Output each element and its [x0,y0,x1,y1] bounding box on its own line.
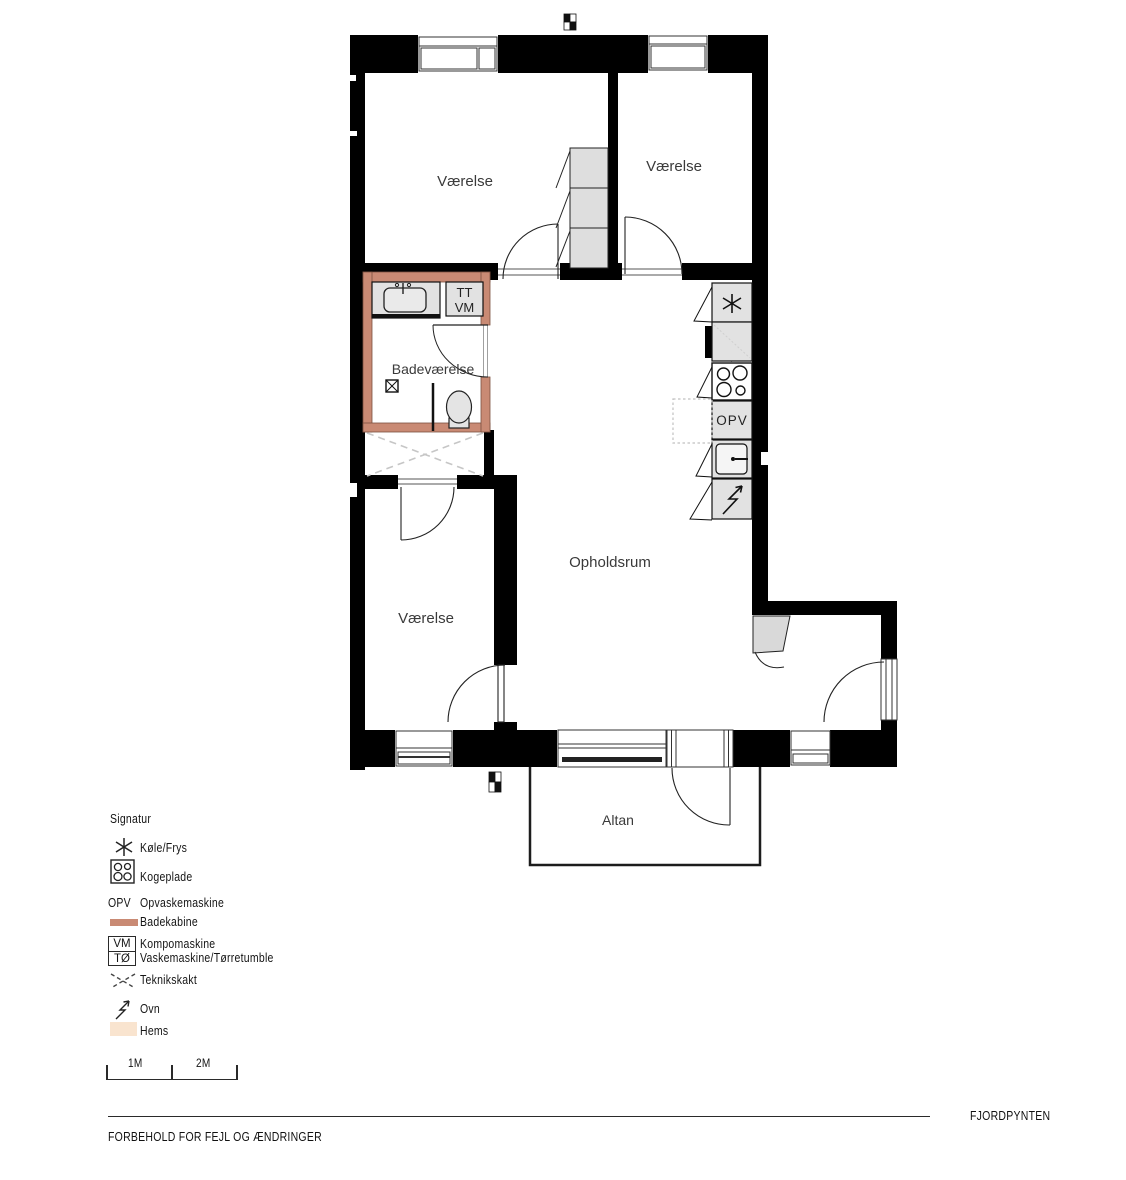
duct-legend-icon [110,972,136,990]
legend-item-washer-2: Vaskemaskine/Tørretumble [140,951,299,965]
oven-legend-icon [112,998,134,1020]
dishwasher-label: OPV [716,413,748,428]
room-label-top-right: Værelse [646,158,702,175]
washer-box-vm: VM [109,937,135,952]
room-label-bottom-left: Værelse [398,610,454,627]
floor-plan-page: TT VM [0,0,1126,1180]
wardrobe-cabinets [556,148,608,268]
fridge-legend-icon [114,837,134,857]
hob-legend-icon [110,859,136,885]
room-label-balcony: Altan [602,812,634,828]
room-label-top-left: Værelse [437,173,493,190]
legend-item-loft: Hems [140,1024,174,1038]
legend-item-washer-1: Kompomaskine [140,937,230,951]
kitchen: OPV [673,283,752,520]
kitchen-counter-dashed [673,399,712,443]
washer-legend-icon: VM TØ [108,936,136,966]
scale-label-1m: 1M [128,1056,145,1070]
legend-item-shower-cabin: Badekabine [140,915,209,929]
bathroom: TT VM [372,282,488,431]
washer-box-to: TØ [109,952,135,966]
scale-label-2m: 2M [196,1056,213,1070]
footer-divider [108,1116,930,1117]
toilet-icon [447,391,472,428]
shower-cabin-swatch [110,919,138,926]
room-label-bathroom: Badeværelse [392,361,475,377]
dishwasher-abbr: OPV [108,896,135,910]
entry-door [753,616,790,668]
bathroom-sink-icon [384,288,426,312]
section-marker-top [564,14,576,30]
disclaimer-text: FORBEHOLD FOR FEJL OG ÆNDRINGER [108,1130,363,1144]
legend-title: Signatur [110,812,159,826]
duct-area [367,433,483,476]
loft-swatch [110,1022,137,1036]
scale-bar: 1M 2M [106,1058,238,1080]
legend-item-dishwasher: Opvaskemaskine [140,896,240,910]
legend-item-fridge: Køle/Frys [140,841,196,855]
balcony-outline [530,767,760,865]
room-label-living: Opholdsrum [569,554,651,571]
floor-plan: TT VM [0,0,1126,900]
legend-item-duct: Teknikskakt [140,973,208,987]
project-name: FJORDPYNTEN [970,1109,1066,1123]
legend: Signatur Køle/Frys Kogeplade OPV Opvaske… [106,812,406,1102]
washer-unit-label-1: TT [457,285,473,300]
legend-item-hob: Kogeplade [140,870,202,884]
section-marker-bottom [489,772,501,792]
washer-unit-label-2: VM [455,300,475,315]
legend-item-oven: Ovn [140,1002,164,1016]
